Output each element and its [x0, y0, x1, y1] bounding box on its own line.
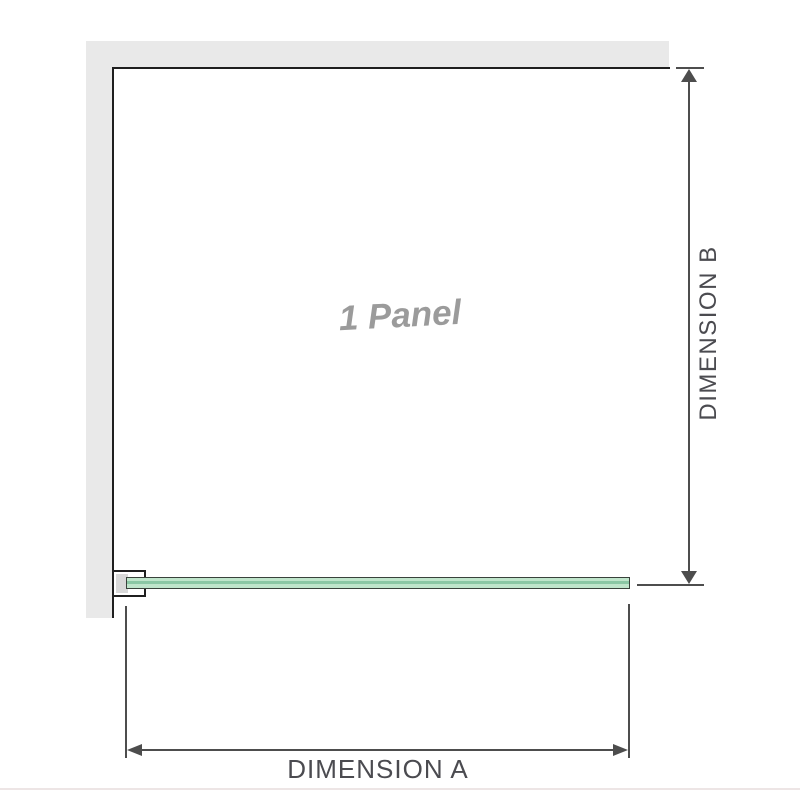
dimension-a-extension-left [125, 606, 127, 758]
dimension-b-tick-bottom [637, 584, 704, 586]
arrow-down-icon [681, 571, 697, 584]
top-wall-edge-line [112, 67, 670, 69]
left-wall-edge-line [112, 67, 114, 618]
arrow-right-icon [613, 744, 628, 756]
diagram-canvas: 1 Panel DIMENSION B DIMENSION A [0, 0, 800, 800]
footer-rule [0, 788, 800, 790]
panel-count-label: 1 Panel [289, 290, 511, 341]
glass-core-line [127, 581, 629, 584]
dimension-b-line [688, 80, 690, 572]
glass-panel-bar [126, 577, 630, 589]
top-wall [86, 41, 669, 67]
dimension-a-line [142, 749, 614, 751]
dimension-a-label: DIMENSION A [228, 754, 528, 785]
dimension-a-extension-right [628, 604, 630, 758]
left-wall [86, 41, 112, 618]
arrow-up-icon [681, 69, 697, 82]
arrow-left-icon [127, 744, 142, 756]
dimension-b-label: DIMENSION B [695, 245, 723, 420]
